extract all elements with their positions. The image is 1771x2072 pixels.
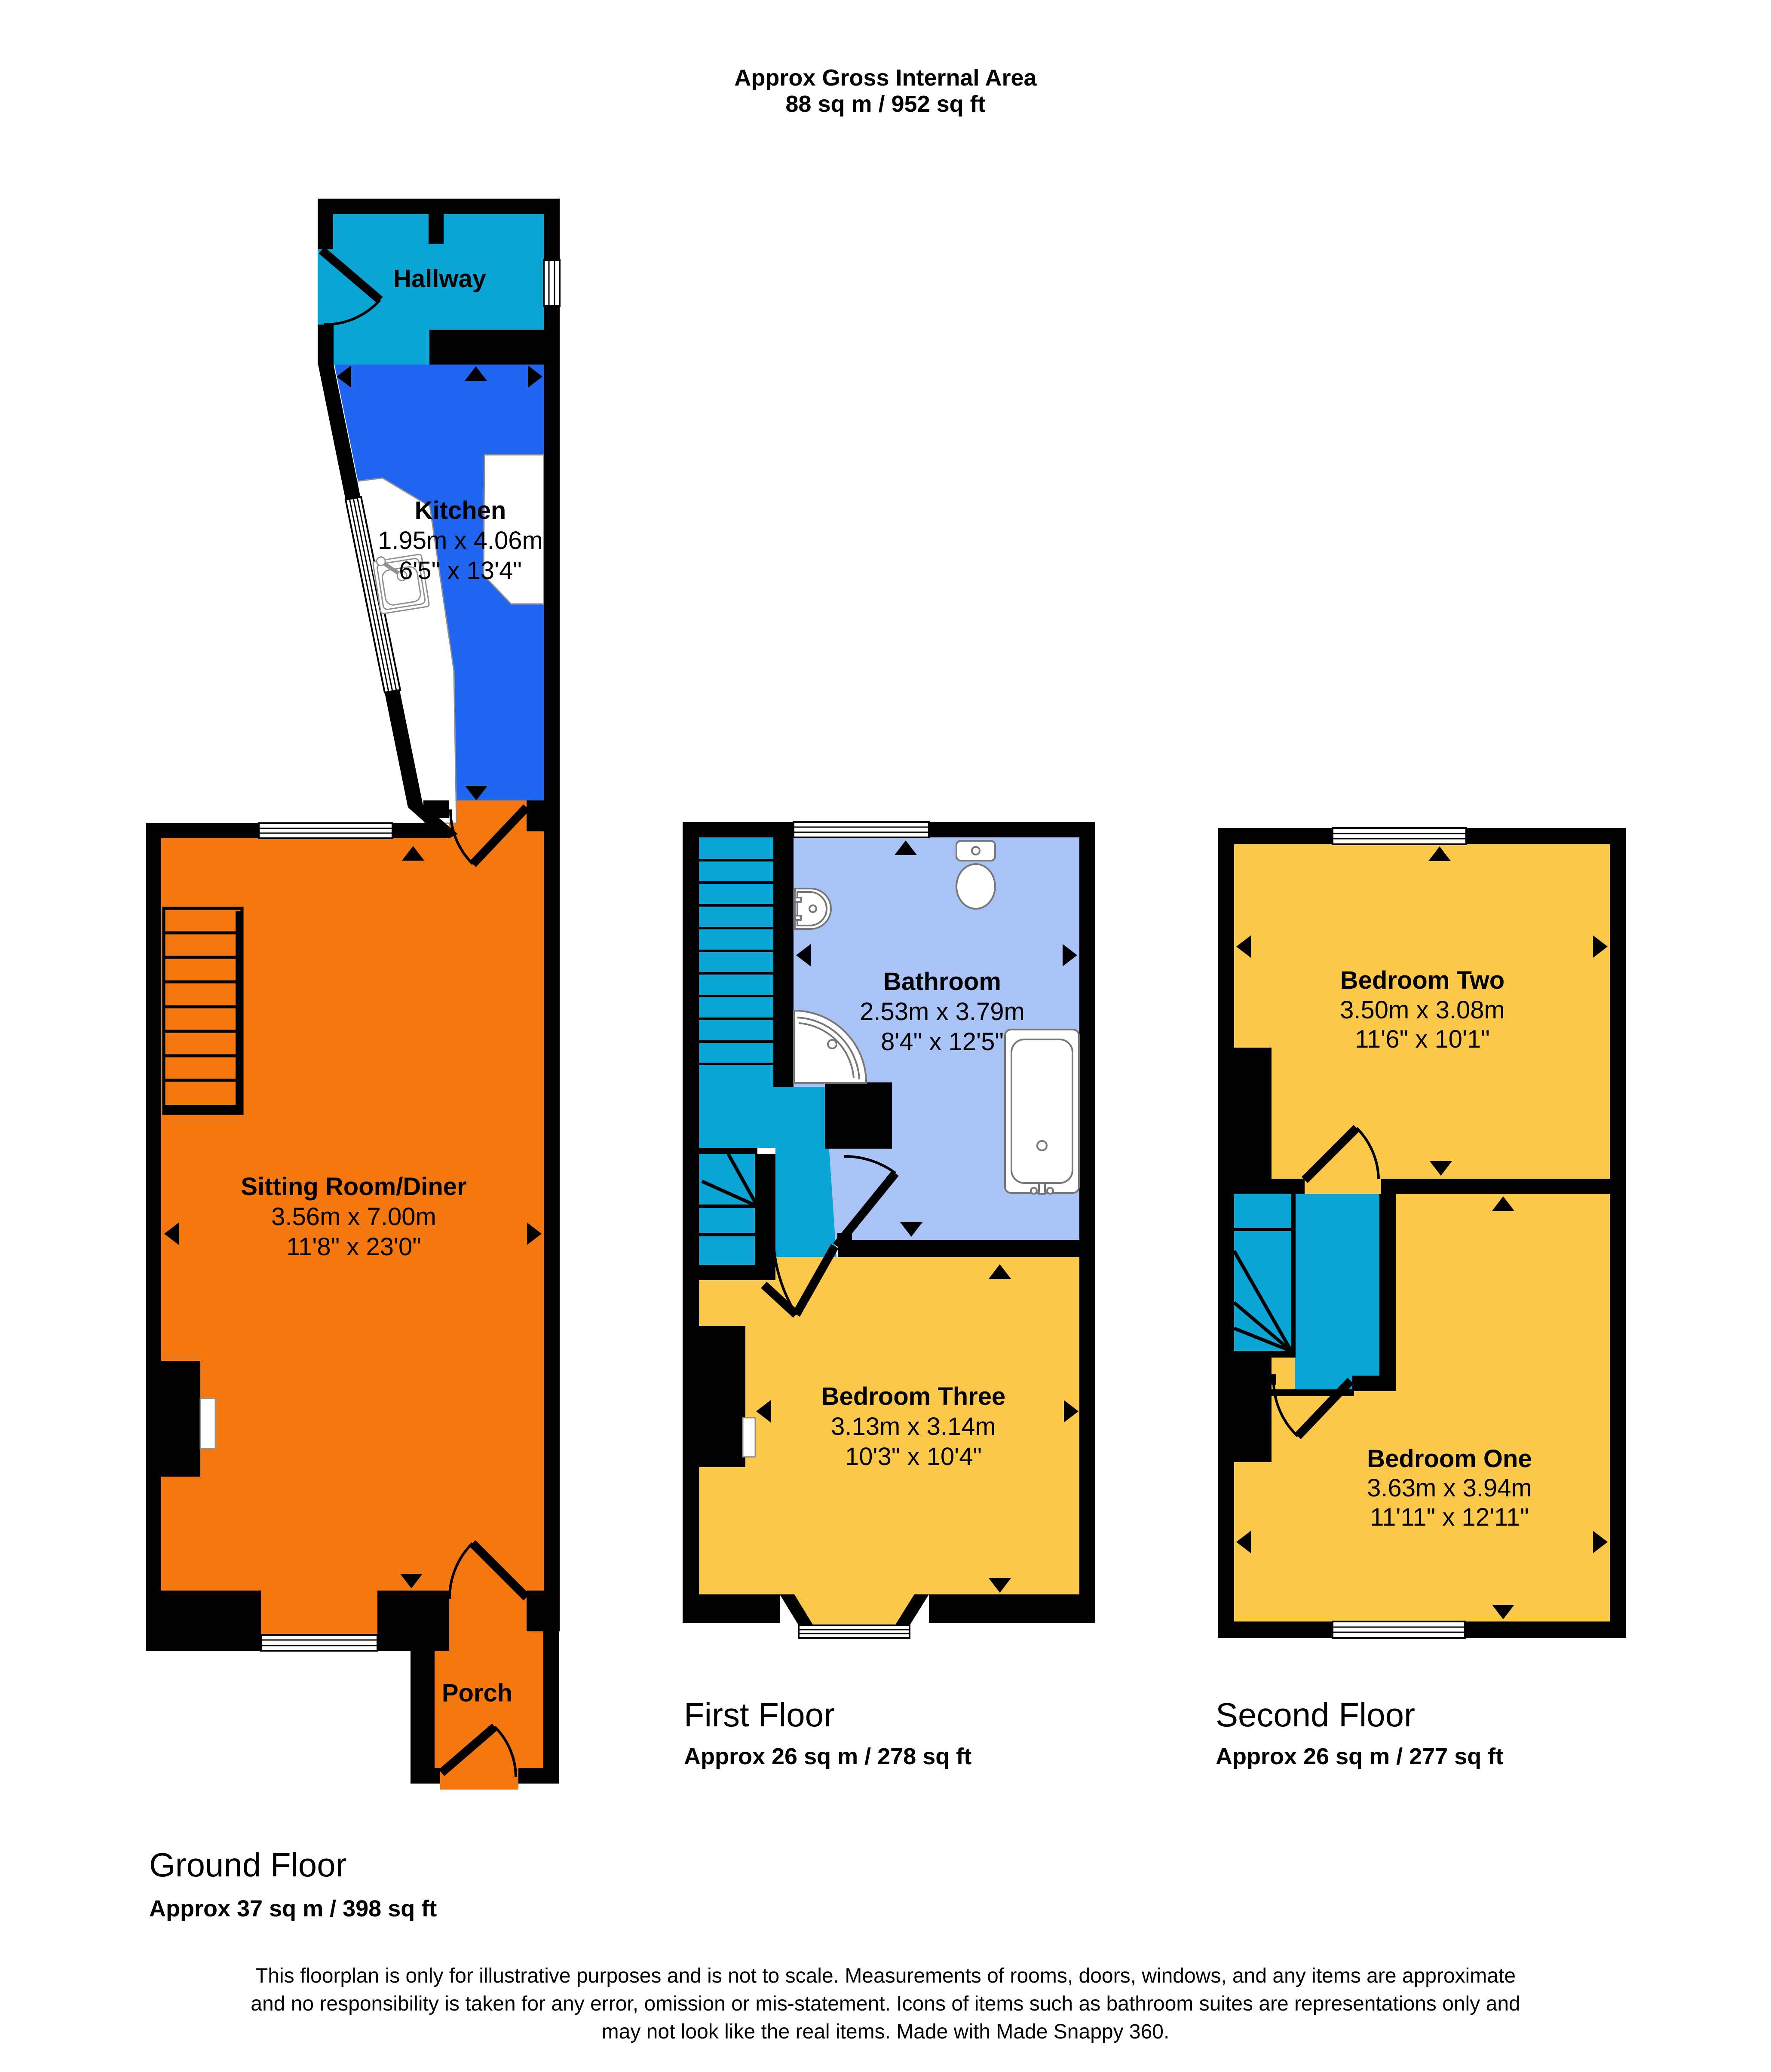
svg-text:3.50m x 3.08m: 3.50m x 3.08m [1340,996,1505,1024]
svg-text:3.13m x 3.14m: 3.13m x 3.14m [831,1413,996,1441]
svg-text:Approx 26 sq m / 278 sq ft: Approx 26 sq m / 278 sq ft [684,1744,971,1769]
svg-text:Approx 26 sq m / 277 sq ft: Approx 26 sq m / 277 sq ft [1216,1744,1503,1769]
svg-text:Bathroom: Bathroom [883,968,1001,996]
svg-text:Bedroom Two: Bedroom Two [1340,966,1504,994]
svg-text:8'4" x 12'5": 8'4" x 12'5" [881,1028,1004,1056]
svg-text:and no responsibility is taken: and no responsibility is taken for any e… [251,1992,1520,2015]
svg-text:Bedroom Three: Bedroom Three [821,1382,1006,1410]
svg-text:Kitchen: Kitchen [415,497,506,524]
svg-text:10'3" x 10'4": 10'3" x 10'4" [845,1443,982,1471]
svg-text:Second Floor: Second Floor [1216,1696,1415,1734]
svg-text:may not look like the real ite: may not look like the real items. Made w… [602,2020,1170,2043]
svg-text:3.56m x 7.00m: 3.56m x 7.00m [271,1203,436,1231]
svg-text:First Floor: First Floor [684,1696,835,1734]
svg-text:6'5" x 13'4": 6'5" x 13'4" [399,557,522,585]
svg-text:Porch: Porch [442,1679,512,1707]
svg-text:2.53m x 3.79m: 2.53m x 3.79m [860,998,1025,1026]
svg-text:Approx 37 sq m / 398 sq ft: Approx 37 sq m / 398 sq ft [149,1896,437,1922]
svg-text:11'6" x 10'1": 11'6" x 10'1" [1355,1025,1490,1053]
svg-text:Sitting Room/Diner: Sitting Room/Diner [241,1173,466,1201]
svg-text:This floorplan is only for ill: This floorplan is only for illustrative … [255,1965,1516,1987]
svg-text:Hallway: Hallway [393,265,486,293]
svg-text:88 sq m / 952 sq ft: 88 sq m / 952 sq ft [785,91,985,117]
svg-text:Ground Floor: Ground Floor [149,1846,347,1884]
svg-text:3.63m x 3.94m: 3.63m x 3.94m [1367,1474,1532,1502]
svg-text:11'8" x 23'0": 11'8" x 23'0" [286,1233,421,1261]
svg-text:1.95m x 4.06m: 1.95m x 4.06m [378,527,543,555]
svg-text:Bedroom One: Bedroom One [1367,1445,1532,1473]
svg-text:11'11" x 12'11": 11'11" x 12'11" [1370,1503,1529,1531]
svg-text:Approx Gross Internal Area: Approx Gross Internal Area [734,65,1037,91]
